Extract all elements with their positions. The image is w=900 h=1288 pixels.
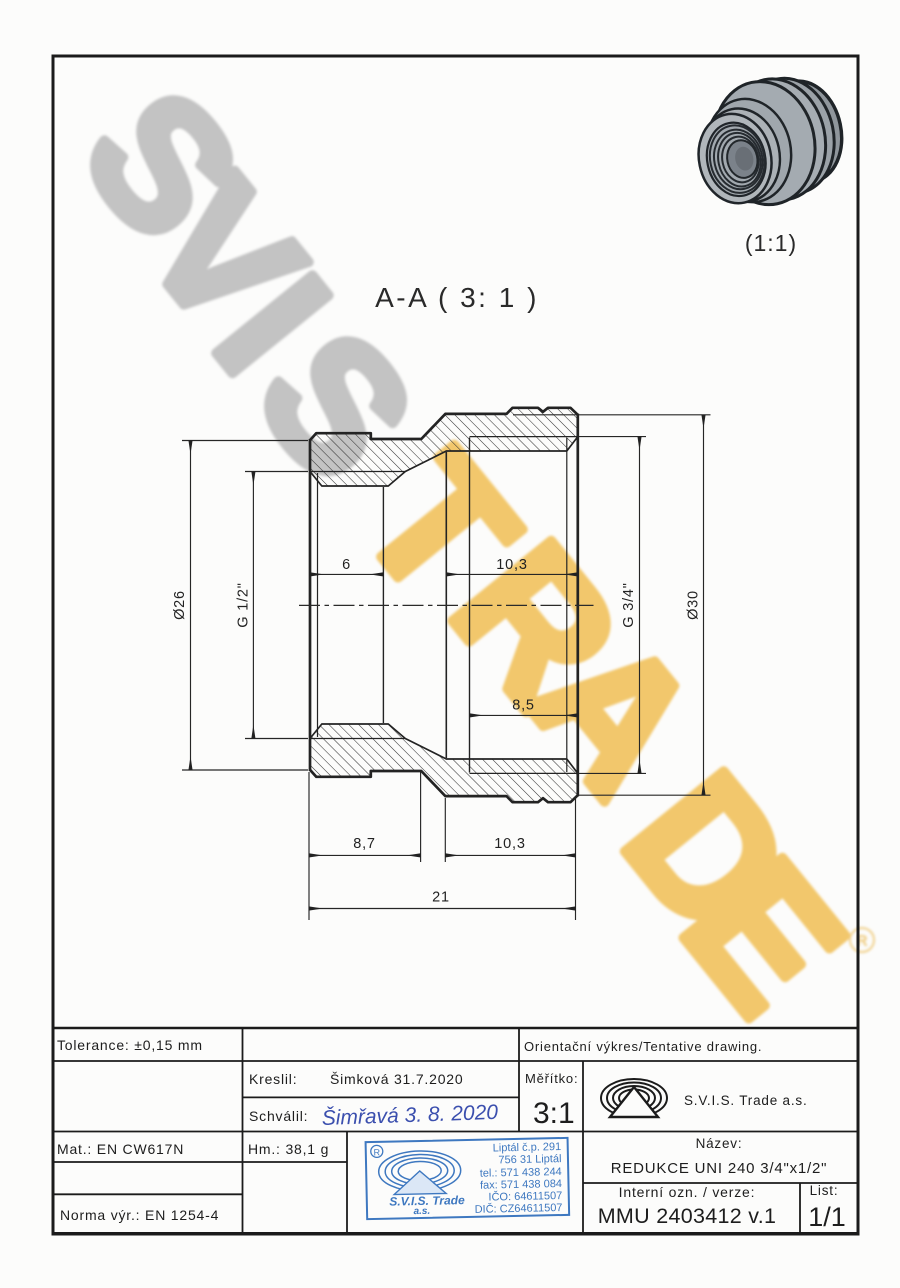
svg-text:Šimková 31.7.2020: Šimková 31.7.2020	[330, 1071, 463, 1087]
svg-text:Šimřavá 3. 8. 2020: Šimřavá 3. 8. 2020	[321, 1101, 498, 1130]
svg-text:8,5: 8,5	[512, 698, 535, 714]
svg-text:Interní ozn. / verze:: Interní ozn. / verze:	[619, 1184, 756, 1200]
svg-text:10,3: 10,3	[494, 836, 525, 852]
svg-text:(1:1): (1:1)	[745, 230, 797, 256]
svg-text:List:: List:	[810, 1183, 839, 1198]
svg-text:Hm.: 38,1 g: Hm.: 38,1 g	[248, 1141, 329, 1157]
svg-text:a.s.: a.s.	[413, 1206, 430, 1217]
svg-text:Měřítko:: Měřítko:	[525, 1071, 578, 1086]
svg-text:S.V.I.S. Trade a.s.: S.V.I.S. Trade a.s.	[684, 1093, 808, 1108]
svg-text:8,7: 8,7	[353, 836, 376, 852]
svg-text:G 3/4": G 3/4"	[621, 582, 637, 627]
svg-text:6: 6	[342, 557, 351, 573]
svg-text:Název:: Název:	[696, 1136, 743, 1151]
svg-text:REDUKCE UNI 240 3/4"x1/2": REDUKCE UNI 240 3/4"x1/2"	[611, 1160, 828, 1177]
svg-text:R: R	[373, 1147, 380, 1157]
svg-text:G 1/2": G 1/2"	[236, 582, 252, 627]
svg-text:1/1: 1/1	[808, 1202, 846, 1232]
svg-text:Tolerance: ±0,15 mm: Tolerance: ±0,15 mm	[57, 1037, 203, 1053]
svg-text:MMU 2403412 v.1: MMU 2403412 v.1	[598, 1204, 777, 1228]
svg-text:756 31 Liptál: 756 31 Liptál	[498, 1153, 561, 1166]
svg-text:DIČ: CZ64611507: DIČ: CZ64611507	[475, 1201, 563, 1216]
svg-text:Ø30: Ø30	[686, 590, 702, 620]
svg-text:A-A ( 3: 1 ): A-A ( 3: 1 )	[375, 282, 539, 313]
svg-text:Kreslil:: Kreslil:	[249, 1071, 297, 1087]
svg-text:Norma výr.: EN 1254-4: Norma výr.: EN 1254-4	[60, 1207, 219, 1223]
svg-text:Schválil:: Schválil:	[249, 1108, 308, 1124]
svg-text:Ø26: Ø26	[172, 590, 188, 620]
svg-text:10,3: 10,3	[496, 557, 527, 573]
svg-text:Orientační výkres/Tentative dr: Orientační výkres/Tentative drawing.	[524, 1039, 762, 1054]
svg-text:Mat.: EN CW617N: Mat.: EN CW617N	[57, 1141, 184, 1157]
svg-text:21: 21	[432, 890, 450, 906]
svg-text:3:1: 3:1	[533, 1097, 575, 1130]
